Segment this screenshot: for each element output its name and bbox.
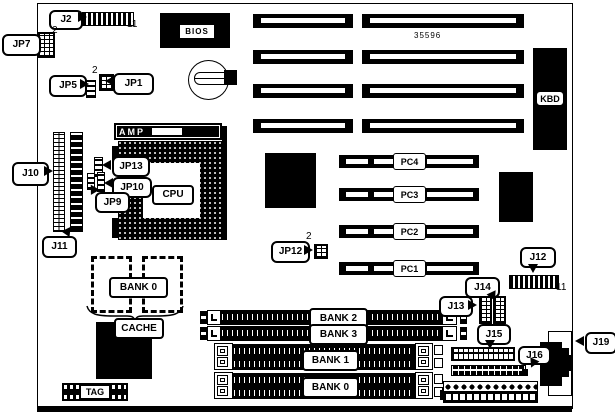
callout-jp1: JP1 — [113, 73, 154, 95]
pointer-j13 — [468, 300, 477, 310]
bios-chip: BIOS — [160, 13, 230, 48]
isa-slot — [253, 119, 353, 133]
chipset-chip — [265, 153, 316, 208]
j10-connector — [53, 132, 65, 232]
callout-j19: J19 — [585, 332, 615, 354]
pci-slot-pc1: PC1 — [339, 262, 479, 275]
j16-connector-step — [522, 369, 528, 376]
socket-tab — [112, 218, 118, 238]
callout-j11: J11 — [42, 236, 77, 258]
bank3-label: BANK 3 — [309, 324, 368, 345]
battery-clip — [194, 72, 227, 85]
j19-connector-step — [562, 348, 569, 377]
tag-chip: TAG — [62, 383, 128, 401]
pc4-label: PC4 — [393, 153, 426, 170]
motherboard-diagram: J2 11 JP7 2 JP5 2 JP1 BIOS 35596 KBD AMP… — [0, 0, 615, 416]
pointer-j15 — [485, 340, 495, 349]
pci-slot-pc2: PC2 — [339, 225, 479, 238]
isa-slot — [362, 84, 524, 98]
battery-clip-end — [224, 70, 237, 85]
bios-label: BIOS — [179, 24, 215, 39]
j12-connector — [509, 275, 559, 289]
pc3-label: PC3 — [393, 186, 426, 203]
pc2-label: PC2 — [393, 223, 426, 240]
callout-jp7: JP7 — [2, 34, 41, 56]
pointer-jp12 — [304, 245, 313, 255]
isa-slot — [253, 50, 353, 64]
pointer-j2 — [78, 12, 87, 22]
isa-slot — [362, 119, 524, 133]
jp12-pin2: 2 — [306, 232, 312, 242]
tag-label: TAG — [80, 385, 110, 399]
pointer-j12 — [528, 264, 538, 273]
pointer-jp5 — [80, 79, 89, 89]
pointer-j10 — [44, 166, 53, 176]
j15-connector — [451, 347, 515, 361]
callout-j12: J12 — [520, 247, 556, 268]
j11-connector — [70, 132, 83, 232]
pointer-j19 — [575, 336, 584, 346]
pc1-label: PC1 — [393, 260, 426, 277]
j2-pin-count: 11 — [127, 20, 137, 30]
bank1-label: BANK 1 — [302, 350, 359, 371]
pci-slot-pc3: PC3 — [339, 188, 479, 201]
jp5-jp1-pin2: 2 — [92, 66, 98, 76]
board-bottom-edge — [37, 406, 572, 412]
amp-label: AMP — [119, 127, 145, 137]
callout-jp9: JP9 — [95, 192, 130, 213]
isa-slot — [253, 84, 353, 98]
jp12-jumper — [314, 244, 328, 259]
kbd-label: KBD — [536, 91, 564, 106]
amp-socket-bar: AMP — [114, 123, 222, 140]
kbd-connector: KBD — [533, 48, 567, 150]
cache-bank0-label: BANK 0 — [109, 277, 168, 298]
socket-shadow — [222, 126, 227, 240]
cache-label: CACHE — [114, 318, 164, 339]
pointer-jp13 — [102, 160, 111, 170]
chipset-chip — [499, 172, 533, 222]
j19-connector-tip — [569, 355, 572, 371]
cpu-label: CPU — [152, 185, 194, 205]
power-connector — [443, 381, 538, 403]
jp7-pin2: 2 — [52, 26, 58, 36]
callout-jp13: JP13 — [112, 156, 150, 177]
isa-slot — [362, 50, 524, 64]
bank0-label: BANK 0 — [302, 377, 359, 398]
amp-notch — [152, 128, 182, 135]
board-part-number: 35596 — [414, 32, 441, 40]
pci-slot-pc4: PC4 — [339, 155, 479, 168]
j16-connector — [451, 365, 526, 376]
isa-slot — [362, 14, 524, 28]
j12-pin-count: 11 — [556, 283, 566, 293]
isa-slot — [253, 14, 353, 28]
